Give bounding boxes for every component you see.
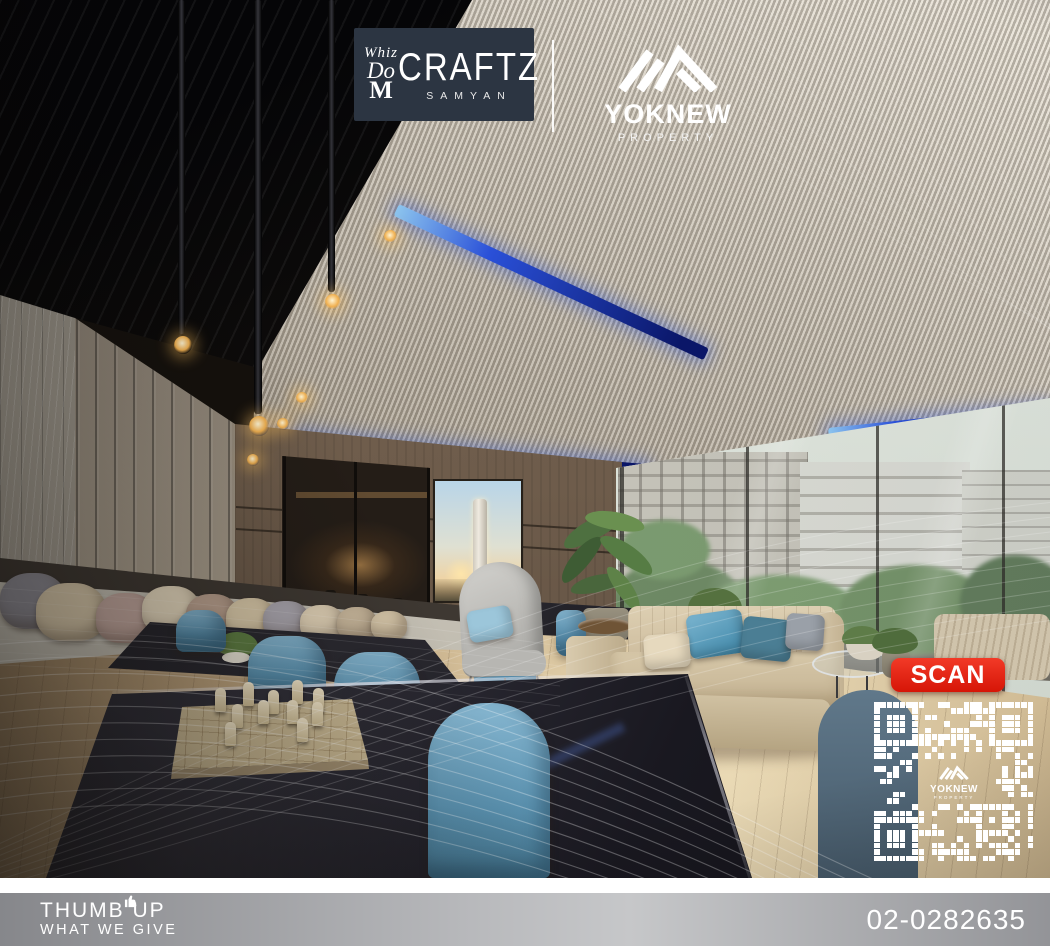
qr-center-logo: YOKNEW PROPERTY	[912, 764, 996, 801]
mountain-icon	[609, 38, 727, 92]
logo-divider	[552, 40, 554, 132]
footer-bar: THUMB UP WHAT WE GIVE 02-0282635	[0, 893, 1050, 946]
property-ad: Whiz Do M CRAFTZ SAMYAN YOKNEW PROPERTY …	[0, 0, 1050, 946]
mountain-icon	[937, 764, 971, 780]
qr-code: YOKNEW PROPERTY	[874, 702, 1034, 862]
craftz-wordmark: CRAFTZ SAMYAN	[398, 48, 540, 102]
whizdom-mark: Whiz Do M	[364, 46, 398, 103]
yoknew-logo: YOKNEW PROPERTY	[580, 38, 756, 144]
whizdom-craftz-logo: Whiz Do M CRAFTZ SAMYAN	[354, 28, 534, 121]
thumbup-brand: THUMB UP WHAT WE GIVE	[40, 900, 177, 938]
thumb-up-icon	[124, 893, 139, 908]
scan-badge: SCAN	[891, 658, 1005, 692]
phone-number: 02-0282635	[867, 904, 1026, 936]
